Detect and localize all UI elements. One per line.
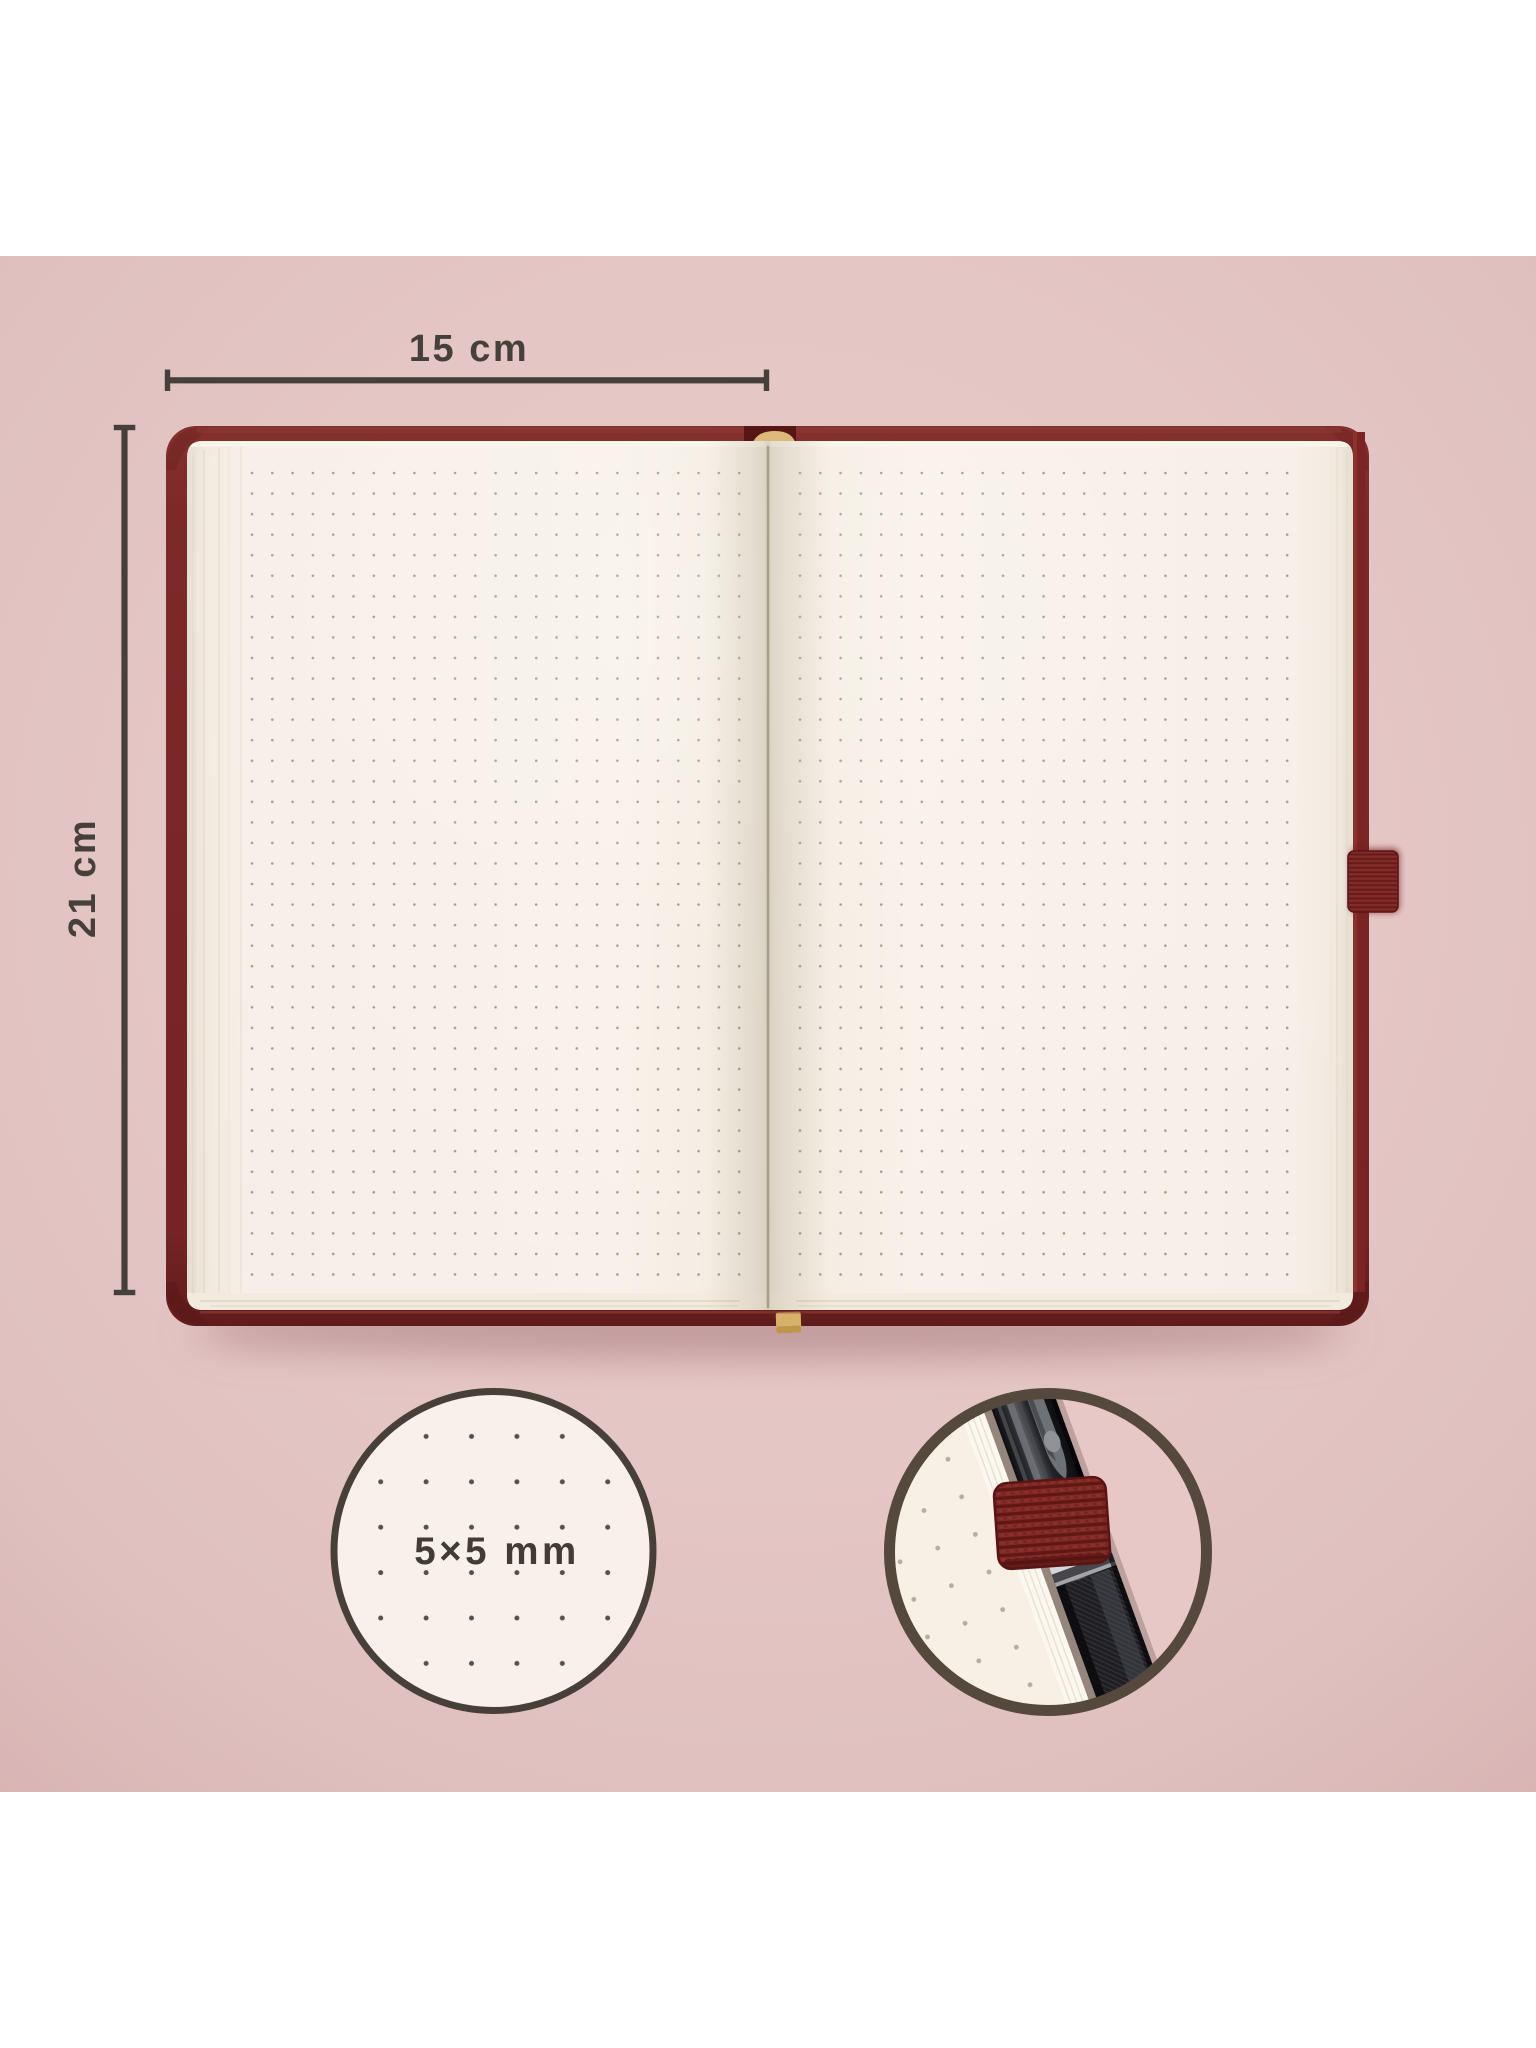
svg-text:21 cm: 21 cm [62,818,104,938]
svg-text:5×5 mm: 5×5 mm [414,1530,579,1573]
svg-text:15 cm: 15 cm [409,328,529,370]
